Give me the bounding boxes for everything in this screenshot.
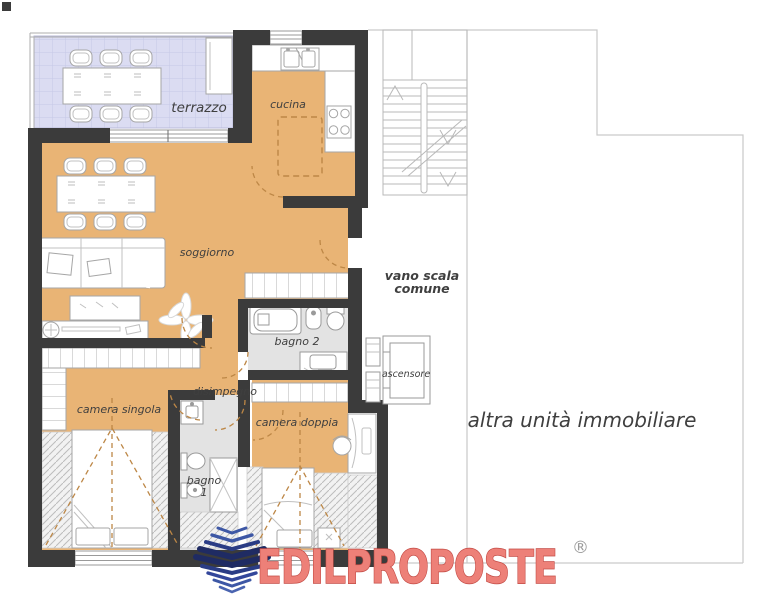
single-room-window [75, 551, 152, 565]
wardrobe-single-h [42, 348, 200, 368]
bidet [306, 307, 321, 329]
bath1-toilet-tank [181, 453, 187, 470]
wardrobe-double [252, 383, 348, 402]
coffee-table [70, 296, 140, 320]
double-room-label: camera doppia [256, 416, 339, 429]
hallway-label: disimpegno [193, 385, 257, 398]
terrace-label: terrazzo [171, 100, 226, 116]
kitchen-window [270, 31, 302, 44]
kitchen-passage-floor [240, 143, 254, 208]
dining-table [57, 176, 155, 212]
stairwell-label-line2: comune [394, 281, 449, 296]
wardrobe-hall [245, 273, 350, 298]
elevator-label: ascensore [382, 369, 431, 380]
living-label: soggiorno [180, 246, 235, 259]
terrace-table [63, 68, 161, 104]
floor-plan-drawing: terrazzo cucina soggiorno vano scala com… [0, 0, 777, 600]
kitchen-label: cucina [270, 98, 306, 111]
bath2-label: bagno 2 [275, 335, 320, 348]
other-unit-label: altra unità immobiliare [468, 408, 697, 432]
stairwell [383, 30, 467, 195]
single-room-label: camera singola [77, 403, 162, 416]
logo-brand-text: EDILPROPOSTE [257, 540, 557, 594]
logo-registered-mark: ® [572, 538, 589, 558]
bath1-label-line2: 1 [201, 486, 208, 499]
floor-plan-page: terrazzo cucina soggiorno vano scala com… [0, 0, 777, 600]
desk-chair [333, 437, 351, 455]
wardrobe-single-v [42, 368, 66, 430]
bath1-toilet [187, 453, 205, 469]
